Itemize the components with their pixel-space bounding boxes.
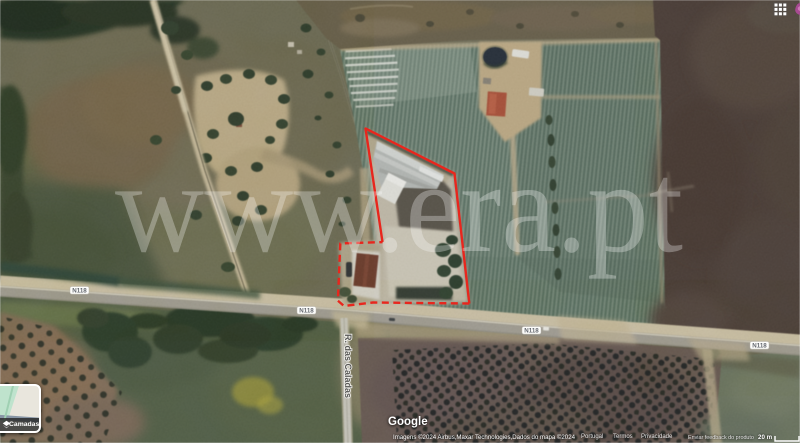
svg-text:N118: N118 xyxy=(299,308,314,315)
svg-text:N118: N118 xyxy=(524,328,539,335)
svg-text:R. das Caladas: R. das Caladas xyxy=(343,334,353,398)
svg-text:N118: N118 xyxy=(752,343,767,350)
svg-text:www.era.pt: www.era.pt xyxy=(115,136,683,280)
svg-text:N118: N118 xyxy=(72,288,87,295)
